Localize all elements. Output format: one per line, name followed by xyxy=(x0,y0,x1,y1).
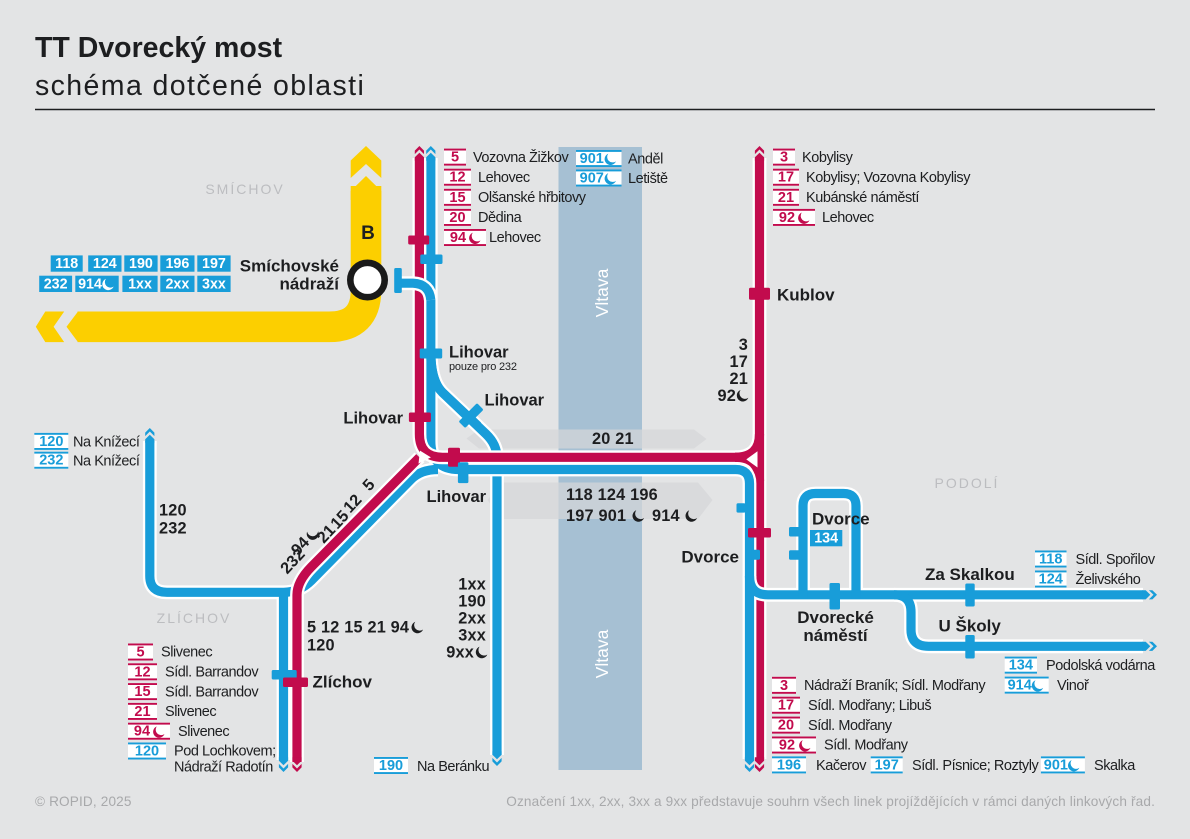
svg-text:92: 92 xyxy=(779,738,795,754)
svg-text:© ROPID, 2025: © ROPID, 2025 xyxy=(35,794,132,809)
svg-text:Pod Lochkovem;: Pod Lochkovem; xyxy=(174,744,276,760)
svg-text:118: 118 xyxy=(55,256,78,272)
svg-text:92: 92 xyxy=(779,210,795,226)
svg-text:2xx: 2xx xyxy=(165,276,189,292)
svg-text:Podolská vodárna: Podolská vodárna xyxy=(1046,658,1156,674)
svg-text:Lehovec: Lehovec xyxy=(489,230,541,246)
svg-text:196: 196 xyxy=(777,757,801,773)
svg-text:Kačerov: Kačerov xyxy=(816,758,867,774)
svg-text:5 12 15 21 94: 5 12 15 21 94 xyxy=(307,619,409,637)
svg-text:Smíchovské: Smíchovské xyxy=(240,257,339,276)
svg-text:120: 120 xyxy=(135,744,159,760)
svg-text:20: 20 xyxy=(778,718,794,734)
svg-text:17: 17 xyxy=(778,170,794,186)
svg-text:Slivenec: Slivenec xyxy=(165,704,216,720)
svg-text:Na Knížecí: Na Knížecí xyxy=(73,453,140,469)
svg-text:907: 907 xyxy=(580,171,604,187)
svg-text:3xx: 3xx xyxy=(458,627,486,645)
svg-text:120: 120 xyxy=(307,637,335,655)
svg-text:B: B xyxy=(361,223,375,244)
svg-text:3: 3 xyxy=(780,678,788,694)
svg-text:Sídl. Barrandov: Sídl. Barrandov xyxy=(165,684,259,700)
svg-text:197: 197 xyxy=(875,757,899,773)
svg-text:197 901: 197 901 xyxy=(566,507,626,525)
svg-text:92: 92 xyxy=(717,387,736,405)
svg-text:1xx: 1xx xyxy=(458,576,486,594)
svg-text:15: 15 xyxy=(449,190,465,206)
svg-text:Dvorce: Dvorce xyxy=(681,548,739,567)
svg-text:9xx: 9xx xyxy=(446,644,474,662)
svg-text:134: 134 xyxy=(1009,658,1033,674)
svg-text:Olšanské hřbitovy: Olšanské hřbitovy xyxy=(478,190,587,206)
svg-text:134: 134 xyxy=(814,531,838,547)
svg-text:Sídl. Písnice; Roztyly: Sídl. Písnice; Roztyly xyxy=(912,758,1039,774)
svg-text:Vltava: Vltava xyxy=(592,268,612,317)
svg-text:Kobylisy; Vozovna Kobylisy: Kobylisy; Vozovna Kobylisy xyxy=(806,170,971,186)
svg-text:232: 232 xyxy=(39,453,63,469)
svg-text:120: 120 xyxy=(159,502,187,520)
svg-text:Na Knížecí: Na Knížecí xyxy=(73,435,140,451)
svg-text:SMÍCHOV: SMÍCHOV xyxy=(205,181,284,197)
svg-text:914: 914 xyxy=(652,507,680,525)
svg-text:17: 17 xyxy=(729,353,748,371)
svg-text:Na Beránku: Na Beránku xyxy=(417,759,489,775)
svg-text:Dvorce: Dvorce xyxy=(812,510,870,529)
svg-text:Kobylisy: Kobylisy xyxy=(802,150,854,166)
svg-text:190: 190 xyxy=(379,758,403,774)
svg-text:901: 901 xyxy=(580,151,604,167)
svg-text:3xx: 3xx xyxy=(202,276,226,292)
svg-text:Anděl: Anděl xyxy=(628,151,663,167)
svg-text:ZLÍCHOV: ZLÍCHOV xyxy=(157,610,232,626)
svg-text:15: 15 xyxy=(134,684,150,700)
svg-text:Letiště: Letiště xyxy=(628,171,668,187)
svg-text:Slivenec: Slivenec xyxy=(161,645,212,661)
svg-text:Sídl. Spořilov: Sídl. Spořilov xyxy=(1076,552,1156,568)
svg-text:Sídl. Barrandov: Sídl. Barrandov xyxy=(165,665,259,681)
svg-text:901: 901 xyxy=(1044,757,1068,773)
svg-text:Skalka: Skalka xyxy=(1094,758,1136,774)
svg-text:94: 94 xyxy=(134,724,150,740)
svg-text:3: 3 xyxy=(739,336,748,354)
svg-text:190: 190 xyxy=(458,593,486,611)
svg-text:Nádraží Radotín: Nádraží Radotín xyxy=(174,760,273,776)
svg-text:Lihovar: Lihovar xyxy=(485,392,545,410)
svg-text:Za Skalkou: Za Skalkou xyxy=(925,565,1015,584)
svg-text:Kubánské náměstí: Kubánské náměstí xyxy=(806,190,919,206)
svg-text:197: 197 xyxy=(202,256,226,272)
svg-text:232: 232 xyxy=(159,520,187,538)
svg-text:5: 5 xyxy=(136,645,144,661)
svg-text:Lihovar: Lihovar xyxy=(449,344,509,362)
svg-text:PODOLÍ: PODOLÍ xyxy=(935,475,1000,491)
svg-text:12: 12 xyxy=(134,664,150,680)
svg-text:914: 914 xyxy=(1008,678,1032,694)
svg-text:Kublov: Kublov xyxy=(777,286,835,305)
svg-text:2xx: 2xx xyxy=(458,610,486,628)
svg-text:Lihovar: Lihovar xyxy=(343,410,403,428)
svg-text:TT Dvorecký most: TT Dvorecký most xyxy=(35,32,283,64)
svg-text:5: 5 xyxy=(451,150,459,166)
svg-text:pouze pro 232: pouze pro 232 xyxy=(449,361,517,373)
svg-text:Želivského: Želivského xyxy=(1076,571,1141,588)
svg-text:118: 118 xyxy=(1039,552,1062,568)
svg-text:124: 124 xyxy=(93,256,117,272)
svg-text:190: 190 xyxy=(129,256,153,272)
svg-text:20: 20 xyxy=(449,210,465,226)
svg-text:Vozovna Žižkov: Vozovna Žižkov xyxy=(473,149,569,166)
svg-text:12: 12 xyxy=(449,170,465,186)
svg-text:232: 232 xyxy=(44,276,68,292)
svg-text:21: 21 xyxy=(134,704,150,720)
svg-text:Sídl. Modřany: Sídl. Modřany xyxy=(808,718,893,734)
svg-text:Lehovec: Lehovec xyxy=(822,210,874,226)
svg-text:17: 17 xyxy=(778,698,794,714)
svg-text:Lihovar: Lihovar xyxy=(427,488,487,506)
svg-text:Sídl. Modřany; Libuš: Sídl. Modřany; Libuš xyxy=(808,698,931,714)
svg-text:Sídl. Modřany: Sídl. Modřany xyxy=(824,738,909,754)
svg-text:118 124 196: 118 124 196 xyxy=(566,486,658,504)
svg-text:196: 196 xyxy=(165,256,189,272)
svg-text:3: 3 xyxy=(780,150,788,166)
svg-text:Slivenec: Slivenec xyxy=(178,724,229,740)
svg-text:94: 94 xyxy=(450,230,466,246)
svg-text:124: 124 xyxy=(1039,572,1063,588)
svg-text:120: 120 xyxy=(39,434,63,450)
svg-text:schéma dotčené oblasti: schéma dotčené oblasti xyxy=(35,70,365,102)
svg-text:nádraží: nádraží xyxy=(279,275,340,294)
svg-text:Vltava: Vltava xyxy=(592,629,612,678)
svg-text:Nádraží Braník; Sídl. Modřany: Nádraží Braník; Sídl. Modřany xyxy=(804,678,986,694)
svg-text:21: 21 xyxy=(729,370,748,388)
svg-text:1xx: 1xx xyxy=(128,276,152,292)
svg-text:21: 21 xyxy=(778,190,794,206)
svg-text:Lehovec: Lehovec xyxy=(478,170,530,186)
svg-text:Dědina: Dědina xyxy=(478,210,523,226)
svg-text:Označení 1xx, 2xx, 3xx a 9xx p: Označení 1xx, 2xx, 3xx a 9xx představuje… xyxy=(506,794,1155,809)
svg-text:U Školy: U Školy xyxy=(939,617,1002,636)
svg-text:914: 914 xyxy=(78,276,102,292)
svg-text:Vinoř: Vinoř xyxy=(1057,678,1090,694)
svg-text:Zlíchov: Zlíchov xyxy=(313,673,373,692)
svg-text:náměstí: náměstí xyxy=(803,626,869,645)
svg-text:Dvorecké: Dvorecké xyxy=(797,608,874,627)
svg-text:20 21: 20 21 xyxy=(592,430,634,448)
